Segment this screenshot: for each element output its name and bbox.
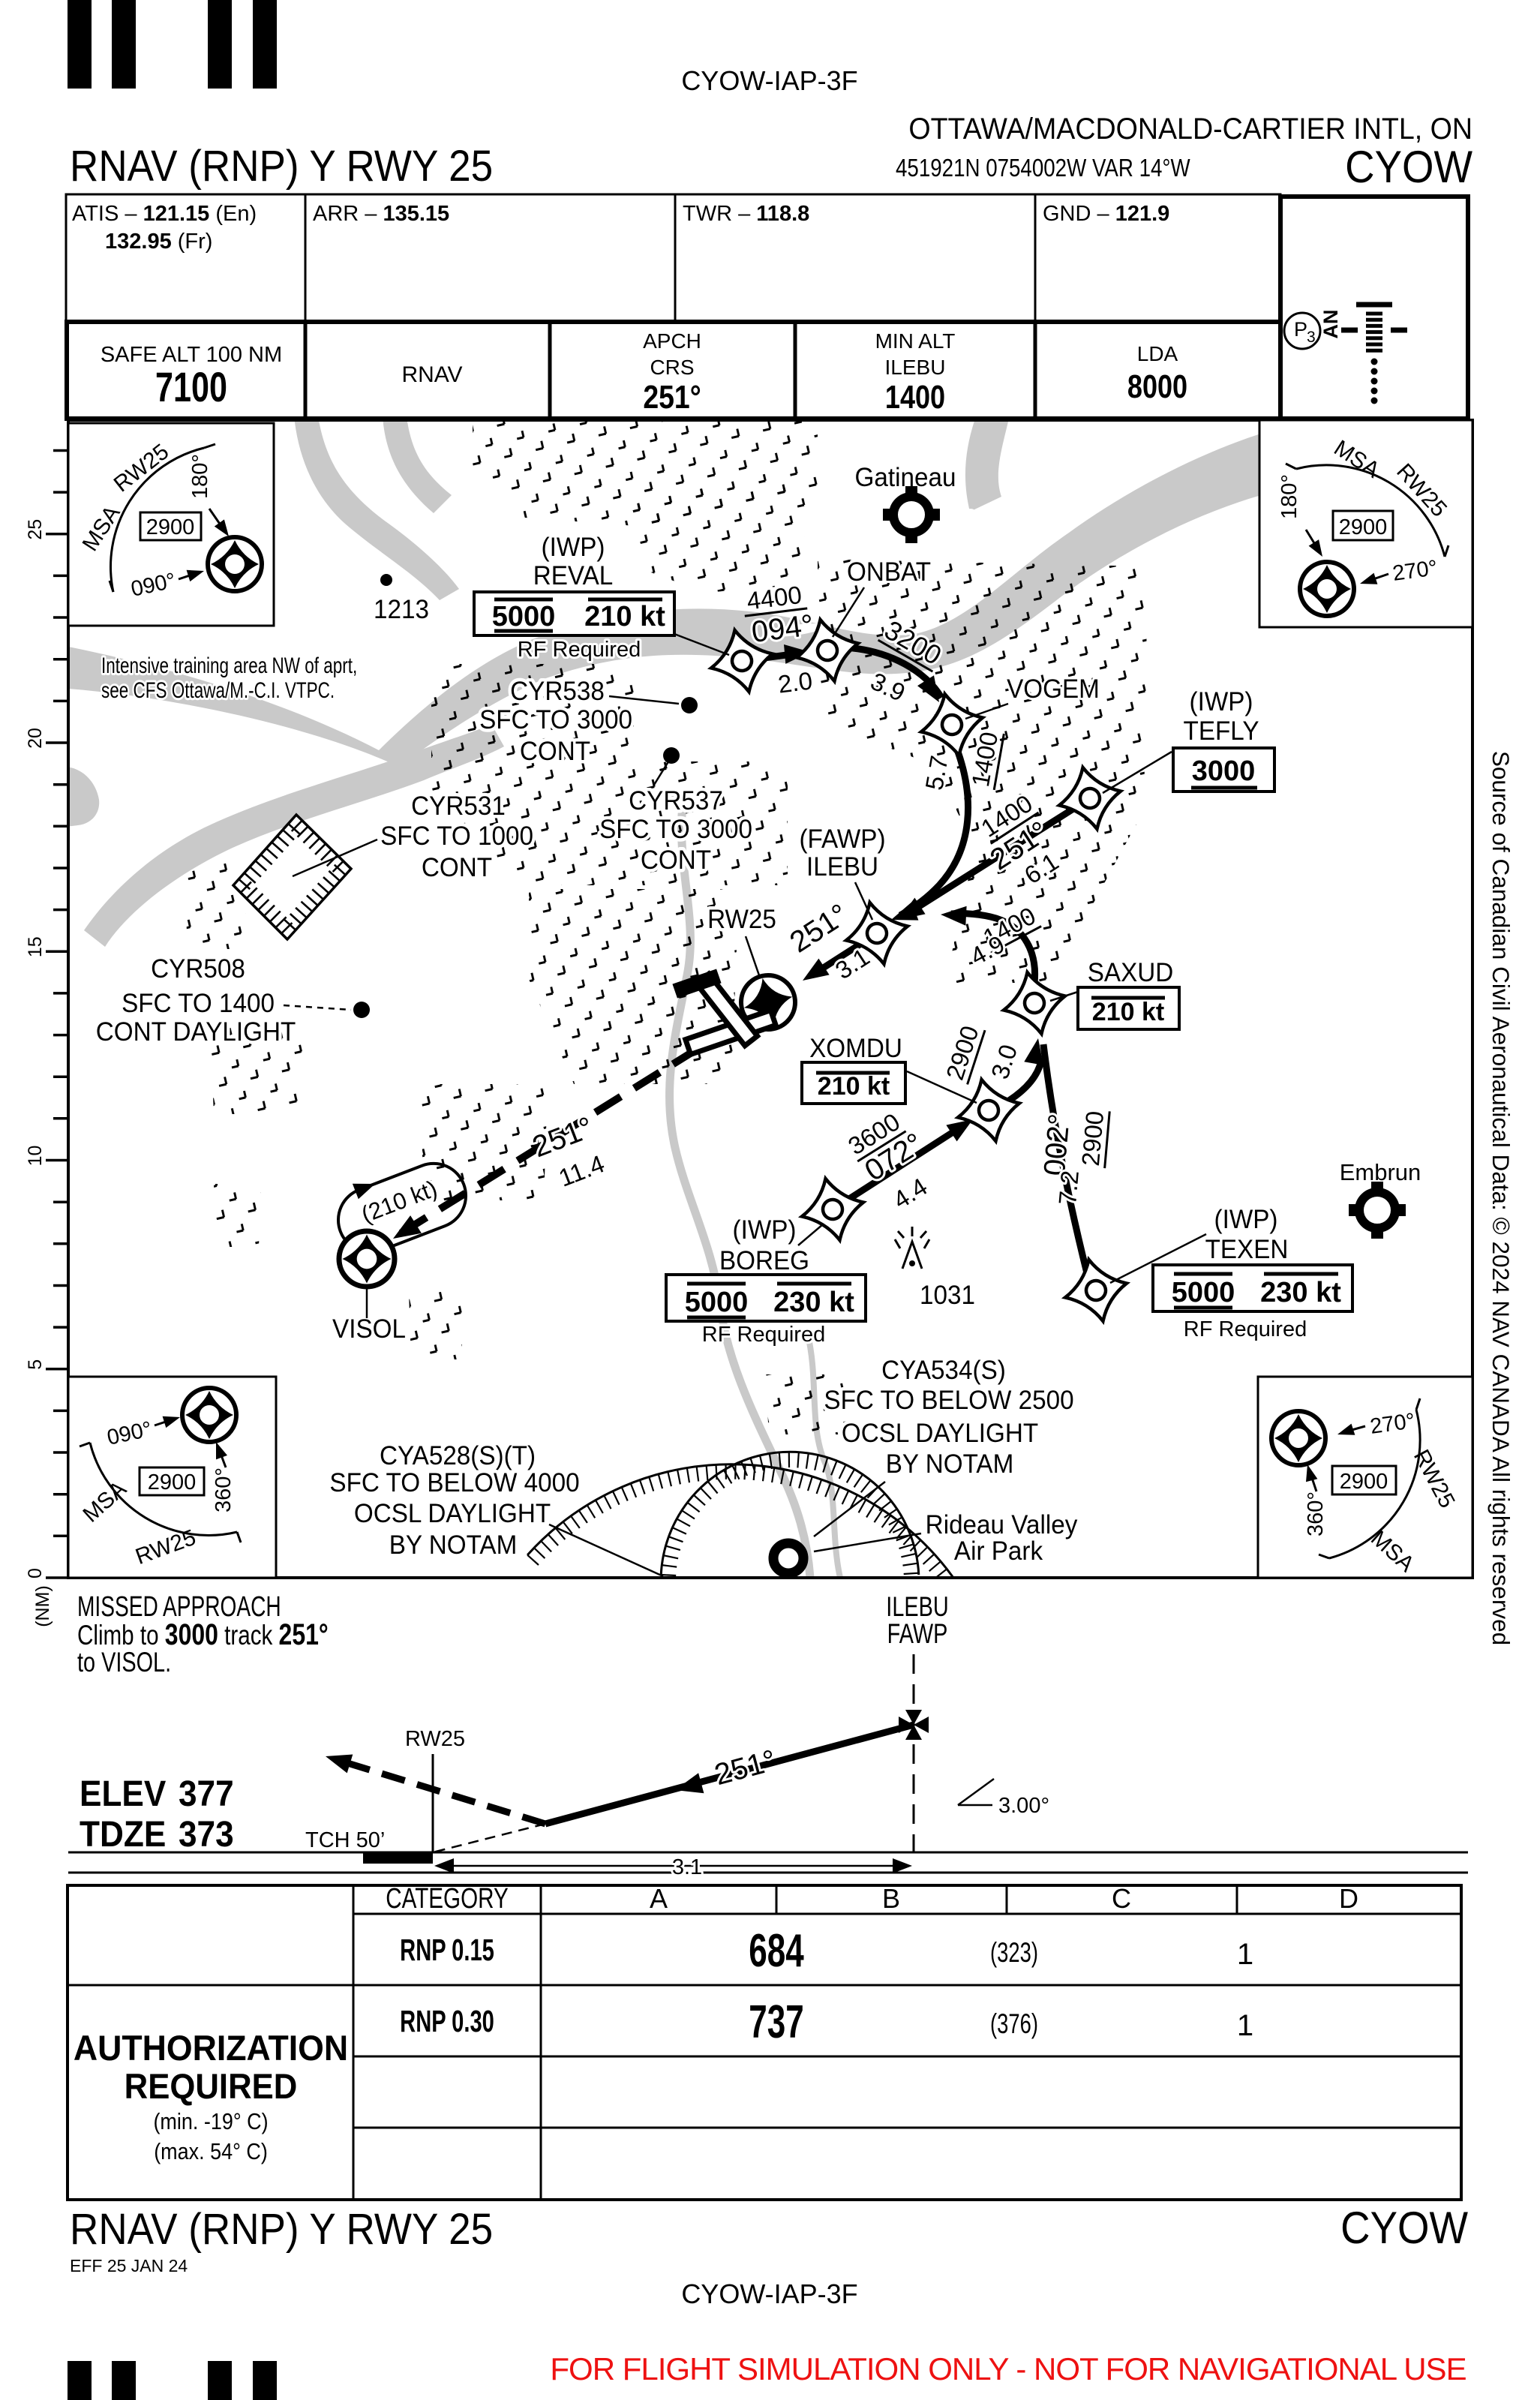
- svg-text:RF Required: RF Required: [1184, 1317, 1307, 1341]
- svg-text:CONT: CONT: [422, 853, 492, 882]
- svg-text:230 kt: 230 kt: [1260, 1277, 1341, 1308]
- svg-text:ONBAT: ONBAT: [847, 557, 931, 587]
- svg-text:Rideau Valley: Rideau Valley: [926, 1510, 1078, 1539]
- svg-text:RNAV (RNP) Y RWY 25: RNAV (RNP) Y RWY 25: [70, 2205, 493, 2254]
- svg-text:2900: 2900: [1339, 515, 1388, 539]
- svg-text:CONT DAYLIGHT: CONT DAYLIGHT: [96, 1017, 296, 1047]
- svg-text:(376): (376): [990, 2008, 1038, 2039]
- svg-text:A: A: [650, 1883, 668, 1914]
- svg-text:C: C: [1112, 1883, 1131, 1914]
- svg-text:CYA528(S)(T): CYA528(S)(T): [380, 1441, 536, 1470]
- svg-text:CYR531: CYR531: [411, 791, 506, 821]
- svg-text:Source of Canadian Civil Aeron: Source of Canadian Civil Aeronautical Da…: [1487, 751, 1514, 1645]
- svg-text:REQUIRED: REQUIRED: [125, 2067, 298, 2107]
- svg-text:373: 373: [179, 1813, 234, 1854]
- svg-text:ATIS – 121.15 (En): ATIS – 121.15 (En): [72, 202, 257, 226]
- svg-text:3: 3: [1307, 329, 1316, 346]
- svg-text:TWR – 118.8: TWR – 118.8: [683, 202, 809, 226]
- svg-text:180°: 180°: [1277, 474, 1301, 519]
- svg-text:RNP 0.30: RNP 0.30: [400, 2004, 494, 2038]
- svg-text:RW25: RW25: [405, 1727, 465, 1751]
- svg-text:2900: 2900: [148, 1470, 197, 1494]
- svg-text:OCSL DAYLIGHT: OCSL DAYLIGHT: [842, 1419, 1038, 1448]
- svg-text:ELEV: ELEV: [80, 1773, 167, 1813]
- svg-text:AUTHORIZATION: AUTHORIZATION: [74, 2029, 348, 2068]
- svg-text:5000: 5000: [492, 601, 556, 632]
- svg-text:2900: 2900: [1076, 1110, 1109, 1167]
- svg-text:Intensive training area NW of: Intensive training area NW of aprt,: [101, 653, 357, 678]
- svg-text:CONT: CONT: [520, 737, 590, 766]
- svg-text:OCSL DAYLIGHT: OCSL DAYLIGHT: [354, 1499, 551, 1528]
- svg-text:2900: 2900: [1340, 1470, 1388, 1494]
- svg-text:ILEBU: ILEBU: [806, 852, 878, 882]
- svg-text:5000: 5000: [685, 1287, 749, 1318]
- svg-text:2900: 2900: [146, 515, 195, 539]
- svg-text:(IWP): (IWP): [1214, 1205, 1278, 1234]
- svg-text:SFC TO 1400: SFC TO 1400: [122, 989, 275, 1018]
- svg-text:CRS: CRS: [650, 356, 694, 379]
- svg-text:451921N 0754002W VAR 14°W: 451921N 0754002W VAR 14°W: [896, 155, 1190, 182]
- svg-text:SFC TO BELOW 2500: SFC TO BELOW 2500: [824, 1386, 1073, 1415]
- svg-text:RW25: RW25: [707, 905, 776, 934]
- svg-text:684: 684: [749, 1925, 804, 1977]
- svg-text:B: B: [882, 1883, 900, 1914]
- svg-text:132.95 (Fr): 132.95 (Fr): [105, 230, 212, 254]
- svg-text:RF Required: RF Required: [518, 638, 641, 662]
- svg-text:1031: 1031: [920, 1281, 975, 1310]
- svg-text:(min. -19° C): (min. -19° C): [153, 2109, 268, 2134]
- svg-text:002°: 002°: [1038, 1113, 1076, 1177]
- svg-text:CYR508: CYR508: [151, 954, 245, 984]
- svg-text:CYR537: CYR537: [629, 786, 723, 816]
- svg-text:SFC TO BELOW 4000: SFC TO BELOW 4000: [329, 1468, 579, 1497]
- svg-text:7100: 7100: [155, 364, 227, 411]
- svg-text:BOREG: BOREG: [719, 1246, 809, 1275]
- svg-text:MIN ALT: MIN ALT: [875, 329, 956, 353]
- svg-text:1213: 1213: [374, 595, 429, 624]
- svg-text:SFC TO 3000: SFC TO 3000: [599, 815, 752, 844]
- svg-text:SAXUD: SAXUD: [1088, 958, 1174, 987]
- svg-text:TCH 50’: TCH 50’: [305, 1828, 385, 1852]
- svg-text:VOGEM: VOGEM: [1007, 674, 1100, 704]
- svg-text:15: 15: [25, 936, 46, 957]
- svg-text:7.2: 7.2: [1053, 1170, 1084, 1206]
- svg-text:251°: 251°: [643, 378, 701, 416]
- svg-text:LDA: LDA: [1137, 342, 1178, 365]
- svg-text:CATEGORY: CATEGORY: [386, 1883, 509, 1915]
- svg-text:5000: 5000: [1172, 1277, 1235, 1308]
- svg-text:CYOW: CYOW: [1340, 2203, 1468, 2254]
- svg-text:1: 1: [1237, 2009, 1253, 2042]
- svg-text:GND – 121.9: GND – 121.9: [1043, 202, 1169, 226]
- svg-text:CYOW-IAP-3F: CYOW-IAP-3F: [681, 65, 857, 96]
- svg-text:10: 10: [25, 1146, 46, 1167]
- svg-text:Air Park: Air Park: [954, 1536, 1043, 1566]
- svg-text:VISOL: VISOL: [332, 1314, 406, 1344]
- svg-text:20: 20: [25, 728, 46, 749]
- svg-text:CYA534(S): CYA534(S): [881, 1356, 1006, 1385]
- svg-text:RNAV: RNAV: [401, 362, 462, 387]
- svg-text:377: 377: [179, 1773, 234, 1813]
- svg-text:see CFS Ottawa/M.-C.I. VTPC.: see CFS Ottawa/M.-C.I. VTPC.: [101, 677, 335, 703]
- svg-text:BY NOTAM: BY NOTAM: [389, 1530, 518, 1560]
- svg-text:8000: 8000: [1127, 368, 1187, 405]
- svg-text:25: 25: [25, 519, 46, 540]
- svg-text:3000: 3000: [1192, 755, 1256, 787]
- svg-text:1: 1: [1237, 1938, 1253, 1971]
- svg-text:ILEBU: ILEBU: [885, 356, 946, 379]
- svg-text:AN: AN: [1319, 310, 1342, 339]
- svg-text:EFF 25 JAN 24: EFF 25 JAN 24: [70, 2256, 188, 2275]
- svg-text:360°: 360°: [212, 1467, 236, 1512]
- svg-text:ARR – 135.15: ARR – 135.15: [313, 202, 449, 226]
- svg-text:SFC TO 1000: SFC TO 1000: [380, 822, 533, 851]
- svg-text:SFC TO 3000: SFC TO 3000: [479, 705, 632, 734]
- svg-text:P: P: [1294, 318, 1307, 341]
- svg-text:(NM): (NM): [32, 1585, 53, 1627]
- svg-text:210 kt: 210 kt: [818, 1072, 890, 1101]
- svg-text:RF Required: RF Required: [702, 1323, 825, 1347]
- svg-text:CONT: CONT: [641, 846, 711, 875]
- svg-text:FOR FLIGHT SIMULATION ONLY - N: FOR FLIGHT SIMULATION ONLY - NOT FOR NAV…: [550, 2351, 1466, 2386]
- svg-text:Embrun: Embrun: [1340, 1159, 1421, 1185]
- svg-text:TEXEN: TEXEN: [1205, 1235, 1289, 1264]
- svg-text:XOMDU: XOMDU: [809, 1034, 902, 1063]
- svg-text:CYOW: CYOW: [1345, 143, 1472, 193]
- svg-text:(IWP): (IWP): [1190, 687, 1253, 716]
- svg-text:Climb to 3000 track 251°: Climb to 3000 track 251°: [77, 1618, 329, 1651]
- svg-text:360°: 360°: [1304, 1491, 1328, 1536]
- svg-text:BY NOTAM: BY NOTAM: [886, 1449, 1014, 1479]
- svg-text:180°: 180°: [188, 454, 212, 499]
- svg-text:5: 5: [25, 1359, 46, 1370]
- svg-text:2.0: 2.0: [776, 666, 814, 698]
- svg-text:TDZE: TDZE: [80, 1813, 166, 1854]
- svg-text:230 kt: 230 kt: [773, 1287, 854, 1318]
- svg-text:3.00°: 3.00°: [998, 1794, 1049, 1818]
- svg-text:(323): (323): [990, 1937, 1038, 1968]
- svg-text:0: 0: [25, 1568, 46, 1578]
- svg-text:1400: 1400: [885, 379, 945, 416]
- svg-text:to VISOL.: to VISOL.: [77, 1648, 171, 1678]
- svg-text:REVAL: REVAL: [533, 561, 614, 590]
- svg-text:RNAV (RNP) Y RWY 25: RNAV (RNP) Y RWY 25: [70, 142, 493, 191]
- svg-text:(IWP): (IWP): [733, 1215, 797, 1245]
- svg-text:RNP 0.15: RNP 0.15: [400, 1933, 494, 1967]
- svg-text:TEFLY: TEFLY: [1184, 716, 1259, 746]
- svg-text:(FAWP): (FAWP): [799, 825, 885, 854]
- svg-text:CYOW-IAP-3F: CYOW-IAP-3F: [681, 2278, 857, 2309]
- svg-text:210 kt: 210 kt: [1092, 998, 1164, 1026]
- svg-text:(IWP): (IWP): [542, 533, 605, 562]
- svg-text:D: D: [1339, 1883, 1358, 1914]
- svg-text:3.1: 3.1: [672, 1855, 702, 1879]
- svg-text:(max. 54° C): (max. 54° C): [154, 2139, 268, 2164]
- svg-text:737: 737: [749, 1996, 803, 2048]
- svg-text:CYR538: CYR538: [510, 677, 605, 706]
- svg-text:FAWP: FAWP: [887, 1619, 948, 1650]
- svg-text:5.7: 5.7: [920, 753, 953, 792]
- svg-text:APCH: APCH: [643, 329, 701, 353]
- svg-text:OTTAWA/MACDONALD-CARTIER INTL,: OTTAWA/MACDONALD-CARTIER INTL, ON: [908, 113, 1472, 146]
- svg-text:210 kt: 210 kt: [584, 601, 665, 632]
